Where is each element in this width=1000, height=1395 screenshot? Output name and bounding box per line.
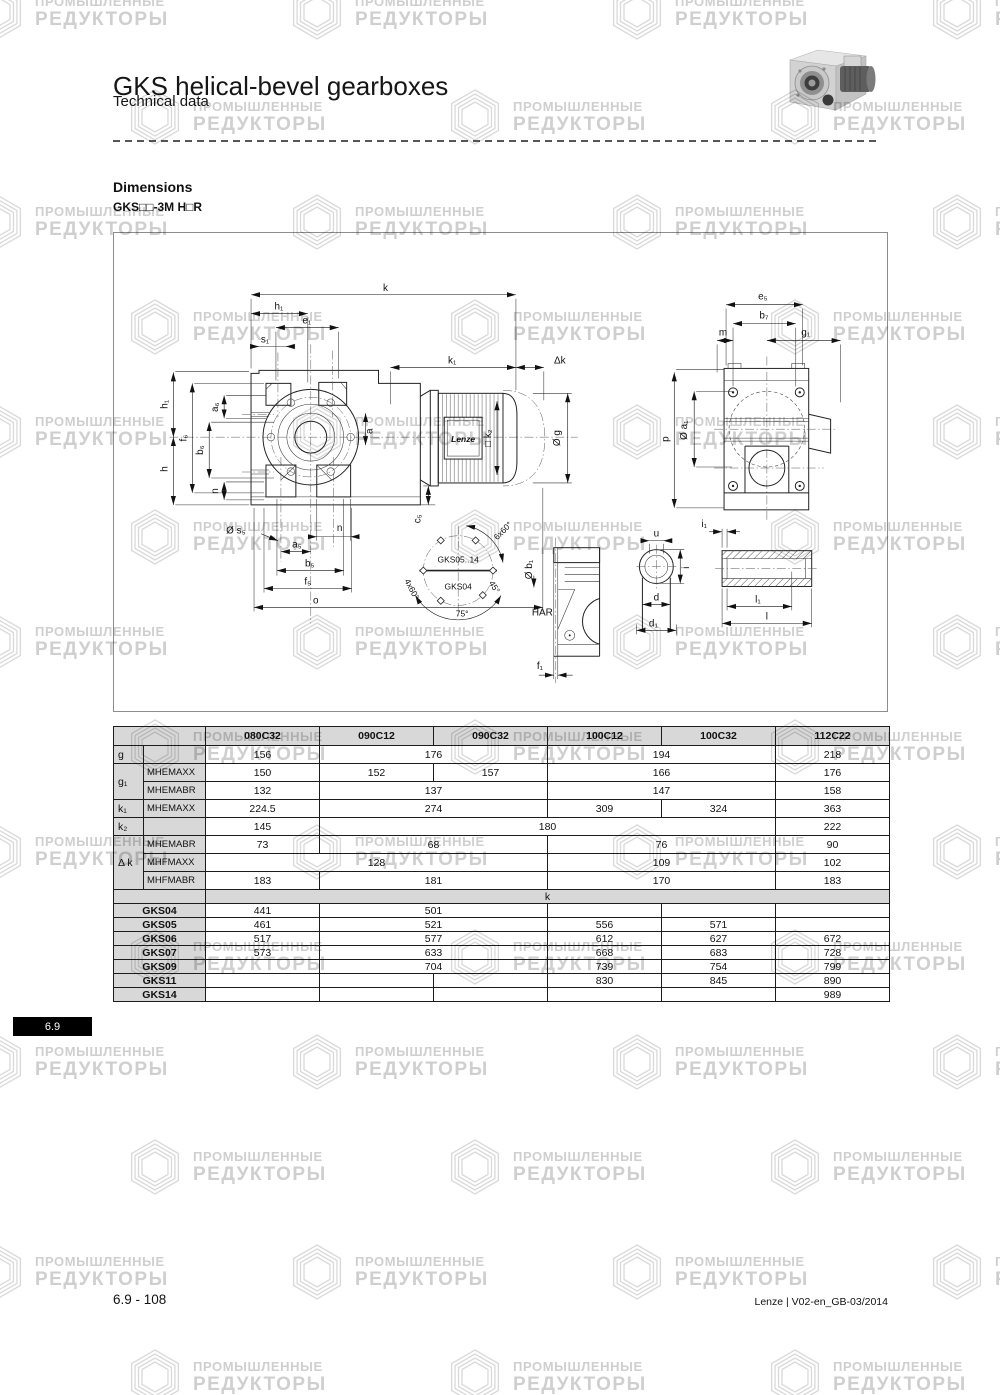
watermark-line2: РЕДУКТОРЫ — [995, 1270, 1000, 1290]
dim-label-e1: e₁ — [302, 316, 312, 327]
table-cell — [320, 974, 434, 988]
gks-row-label: GKS11 — [114, 974, 206, 988]
watermark-line1: ПРОМЫШЛЕННЫЕ — [675, 0, 809, 10]
dimension-table: 080C32090C12090C32100C12100C32112C22g156… — [113, 726, 890, 1002]
watermark-line2: РЕДУКТОРЫ — [355, 1060, 489, 1080]
variant-label: GKS□□-3M H□R — [113, 200, 202, 214]
watermark: ПРОМЫШЛЕННЫЕРЕДУКТОРЫ — [765, 1345, 967, 1395]
watermark: ПРОМЫШЛЕННЫЕРЕДУКТОРЫ — [0, 1030, 169, 1094]
watermark-line1: ПРОМЫШЛЕННЫЕ — [355, 0, 489, 10]
table-cell: 102 — [776, 854, 890, 872]
watermark: ПРОМЫШЛЕННЫЕРЕДУКТОРЫ — [765, 1135, 967, 1199]
label-45deg: 45° — [487, 579, 502, 595]
table-cell: 845 — [662, 974, 776, 988]
table-cell: 156 — [206, 746, 320, 764]
row-label: g — [114, 746, 144, 764]
watermark-line2: РЕДУКТОРЫ — [995, 430, 1000, 450]
watermark: ПРОМЫШЛЕННЫЕРЕДУКТОРЫ — [287, 1240, 489, 1304]
watermark-hexagon-logo — [927, 820, 987, 884]
label-gks04: GKS04 — [445, 582, 473, 592]
watermark-line1: ПРОМЫШЛЕННЫЕ — [995, 834, 1000, 850]
dimension-drawing-frame: k h₁ e₁ s₁ k₁ Δk — [113, 232, 888, 712]
watermark: ПРОМЫШЛЕННЫЕРЕДУКТОРЫ — [927, 1240, 1000, 1304]
section-label-cell — [114, 890, 206, 904]
watermark-line1: ПРОМЫШЛЕННЫЕ — [995, 204, 1000, 220]
col-header: 112C22 — [776, 727, 890, 746]
row-sublabel: MHEMABR — [144, 782, 206, 800]
dim-label-phi-a1: Ø a₁ — [679, 420, 690, 440]
watermark-hexagon-logo — [0, 610, 27, 674]
watermark-hexagon-logo — [927, 0, 987, 44]
watermark-line1: ПРОМЫШЛЕННЫЕ — [193, 1359, 327, 1375]
dim-label-a: a — [365, 428, 376, 434]
table-cell: 577 — [320, 932, 548, 946]
dimension-drawing: k h₁ e₁ s₁ k₁ Δk — [114, 233, 887, 711]
table-cell: 728 — [776, 946, 890, 960]
table-cell — [206, 988, 320, 1002]
dim-label-h1-left: h₁ — [159, 399, 170, 409]
watermark-line2: РЕДУКТОРЫ — [675, 1060, 809, 1080]
watermark-line2: РЕДУКТОРЫ — [513, 115, 647, 135]
watermark: ПРОМЫШЛЕННЫЕРЕДУКТОРЫ — [125, 1345, 327, 1395]
dim-label-o: o — [313, 595, 319, 606]
table-cell — [206, 974, 320, 988]
watermark-line1: ПРОМЫШЛЕННЫЕ — [355, 1044, 489, 1060]
table-cell: 152 — [320, 764, 434, 782]
watermark-hexagon-logo — [0, 0, 27, 44]
table-cell: 830 — [548, 974, 662, 988]
watermark-hexagon-logo — [927, 1030, 987, 1094]
gks-row-label: GKS14 — [114, 988, 206, 1002]
row-label: k₁ — [114, 800, 144, 818]
row-sublabel — [144, 746, 206, 764]
watermark-hexagon-logo — [607, 0, 667, 44]
row-sublabel: MHFMABR — [144, 872, 206, 890]
table-cell: 194 — [548, 746, 776, 764]
watermark-line1: ПРОМЫШЛЕННЫЕ — [675, 204, 809, 220]
dim-label-e5: e₅ — [758, 292, 768, 303]
table-corner-cell — [114, 727, 206, 746]
gks-row-label: GKS04 — [114, 904, 206, 918]
watermark-line2: РЕДУКТОРЫ — [193, 1165, 327, 1185]
watermark-line1: ПРОМЫШЛЕННЫЕ — [675, 1044, 809, 1060]
watermark-line1: ПРОМЫШЛЕННЫЕ — [995, 0, 1000, 10]
watermark-line2: РЕДУКТОРЫ — [833, 1375, 967, 1395]
col-header: 100C32 — [662, 727, 776, 746]
watermark-line2: РЕДУКТОРЫ — [193, 115, 327, 135]
watermark-line2: РЕДУКТОРЫ — [833, 1165, 967, 1185]
dim-label-a6: a₆ — [210, 402, 221, 412]
table-cell: 158 — [776, 782, 890, 800]
dim-label-s1: s₁ — [261, 335, 270, 346]
col-header: 090C32 — [434, 727, 548, 746]
label-har: HAR — [532, 607, 553, 618]
table-cell — [662, 988, 776, 1002]
dim-label-u: u — [654, 529, 660, 540]
label-75deg: 75° — [456, 608, 469, 618]
shaft-section-view: u i d d₁ — [636, 529, 692, 635]
row-sublabel: MHEMAXX — [144, 800, 206, 818]
watermark-line1: ПРОМЫШЛЕННЫЕ — [35, 1044, 169, 1060]
table-cell: 68 — [320, 836, 548, 854]
dim-label-k2: □ k₂ — [483, 429, 494, 447]
table-cell: 180 — [320, 818, 776, 836]
har-section-view: Ø b₁ HAR f₁ — [524, 538, 600, 683]
table-cell: 704 — [320, 960, 548, 974]
watermark-hexagon-logo — [287, 1030, 347, 1094]
dim-label-d: d — [654, 592, 660, 603]
hollow-shaft-view: i₁ l₁ l — [701, 519, 818, 628]
watermark-line1: ПРОМЫШЛЕННЫЕ — [513, 99, 647, 115]
watermark-line2: РЕДУКТОРЫ — [995, 850, 1000, 870]
dim-label-d1: d₁ — [649, 618, 659, 629]
watermark: ПРОМЫШЛЕННЫЕРЕДУКТОРЫ — [927, 820, 1000, 884]
watermark-line2: РЕДУКТОРЫ — [513, 1375, 647, 1395]
watermark: ПРОМЫШЛЕННЫЕРЕДУКТОРЫ — [927, 190, 1000, 254]
table-cell — [662, 904, 776, 918]
table-cell: 147 — [548, 782, 776, 800]
watermark: ПРОМЫШЛЕННЫЕРЕДУКТОРЫ — [125, 1135, 327, 1199]
watermark-hexagon-logo — [0, 400, 27, 464]
dim-label-p: p — [660, 436, 671, 442]
watermark: ПРОМЫШЛЕННЫЕРЕДУКТОРЫ — [927, 610, 1000, 674]
watermark-line1: ПРОМЫШЛЕННЫЕ — [513, 1149, 647, 1165]
row-sublabel — [144, 818, 206, 836]
dim-label-l: l — [766, 611, 768, 622]
dim-label-m: m — [719, 328, 727, 339]
dim-label-c5: c₅ — [412, 514, 423, 523]
row-sublabel: MHEMAXX — [144, 764, 206, 782]
dim-label-phi-s5: Ø s₅ — [226, 526, 245, 537]
watermark: ПРОМЫШЛЕННЫЕРЕДУКТОРЫ — [927, 1030, 1000, 1094]
gks-row-label: GKS06 — [114, 932, 206, 946]
watermark-hexagon-logo — [0, 820, 27, 884]
dim-label-l1: l₁ — [755, 594, 761, 605]
watermark-hexagon-logo — [287, 1240, 347, 1304]
table-cell: 90 — [776, 836, 890, 854]
table-cell: 145 — [206, 818, 320, 836]
label-gks05-14: GKS05..14 — [437, 555, 479, 565]
watermark: ПРОМЫШЛЕННЫЕРЕДУКТОРЫ — [927, 400, 1000, 464]
gks-row-label: GKS07 — [114, 946, 206, 960]
section-heading: Dimensions — [113, 179, 192, 195]
table-cell: 183 — [206, 872, 320, 890]
row-sublabel: MHFMAXX — [144, 854, 206, 872]
table-cell: 556 — [548, 918, 662, 932]
table-cell: 76 — [548, 836, 776, 854]
watermark: ПРОМЫШЛЕННЫЕРЕДУКТОРЫ — [287, 0, 489, 44]
dim-label-a5: a₅ — [292, 540, 302, 551]
table-cell: 128 — [206, 854, 548, 872]
table-cell: 363 — [776, 800, 890, 818]
table-cell: 176 — [320, 746, 548, 764]
table-cell: 224.5 — [206, 800, 320, 818]
table-cell: 521 — [320, 918, 548, 932]
table-cell — [434, 974, 548, 988]
watermark-line1: ПРОМЫШЛЕННЫЕ — [995, 1044, 1000, 1060]
table-cell: 633 — [320, 946, 548, 960]
watermark-hexagon-logo — [125, 1135, 185, 1199]
table-cell: 157 — [434, 764, 548, 782]
table-cell: 517 — [206, 932, 320, 946]
row-sublabel: MHEMABR — [144, 836, 206, 854]
dim-label-f6: f₆ — [178, 435, 189, 442]
table-cell: 501 — [320, 904, 548, 918]
dim-label-dk: Δk — [554, 355, 566, 366]
table-cell: 668 — [548, 946, 662, 960]
watermark: ПРОМЫШЛЕННЫЕРЕДУКТОРЫ — [287, 1030, 489, 1094]
watermark-line1: ПРОМЫШЛЕННЫЕ — [833, 1359, 967, 1375]
gks-row-label: GKS05 — [114, 918, 206, 932]
watermark-line2: РЕДУКТОРЫ — [35, 1270, 169, 1290]
page-number: 6.9 - 108 — [113, 1292, 166, 1307]
table-cell — [776, 904, 890, 918]
table-cell: 441 — [206, 904, 320, 918]
dim-label-k: k — [383, 283, 388, 294]
table-cell: 890 — [776, 974, 890, 988]
watermark-line1: ПРОМЫШЛЕННЫЕ — [193, 1149, 327, 1165]
dim-label-g1: g₁ — [801, 328, 811, 339]
dim-label-k1: k₁ — [448, 355, 457, 366]
watermark-hexagon-logo — [125, 1345, 185, 1395]
watermark-hexagon-logo — [927, 400, 987, 464]
table-cell: 754 — [662, 960, 776, 974]
table-cell: 137 — [320, 782, 548, 800]
label-6x60: 6x60° — [492, 519, 514, 541]
table-cell — [548, 988, 662, 1002]
watermark-line1: ПРОМЫШЛЕННЫЕ — [35, 1254, 169, 1270]
watermark-line2: РЕДУКТОРЫ — [35, 1060, 169, 1080]
dim-label-b5: b₅ — [305, 559, 315, 570]
table-cell: 324 — [662, 800, 776, 818]
row-label: g₁ — [114, 764, 144, 800]
row-label: Δ k — [114, 836, 144, 890]
dim-label-i1: i₁ — [701, 519, 707, 530]
watermark-hexagon-logo — [927, 610, 987, 674]
watermark-hexagon-logo — [765, 1345, 825, 1395]
table-cell: 132 — [206, 782, 320, 800]
product-photo — [778, 38, 893, 118]
watermark-hexagon-logo — [445, 1135, 505, 1199]
watermark-line2: РЕДУКТОРЫ — [995, 220, 1000, 240]
brand-nameplate: Lenze — [451, 434, 475, 444]
chapter-tab: 6.9 — [13, 1017, 92, 1036]
watermark-line2: РЕДУКТОРЫ — [193, 1375, 327, 1395]
table-cell: 109 — [548, 854, 776, 872]
watermark-line1: ПРОМЫШЛЕННЫЕ — [355, 1254, 489, 1270]
document-reference: Lenze | V02-en_GB-03/2014 — [755, 1296, 889, 1308]
table-cell: 166 — [548, 764, 776, 782]
watermark: ПРОМЫШЛЕННЫЕРЕДУКТОРЫ — [927, 0, 1000, 44]
watermark-line1: ПРОМЫШЛЕННЫЕ — [995, 624, 1000, 640]
table-cell: 627 — [662, 932, 776, 946]
watermark-line2: РЕДУКТОРЫ — [995, 10, 1000, 30]
watermark: ПРОМЫШЛЕННЫЕРЕДУКТОРЫ — [445, 1135, 647, 1199]
table-cell: 683 — [662, 946, 776, 960]
watermark-line1: ПРОМЫШЛЕННЫЕ — [995, 1254, 1000, 1270]
col-header: 100C12 — [548, 727, 662, 746]
table-cell — [776, 918, 890, 932]
col-header: 090C12 — [320, 727, 434, 746]
dashed-divider — [113, 140, 881, 142]
dimension-table-mount: 080C32090C12090C32100C12100C32112C22g156… — [113, 726, 890, 1002]
col-header: 080C32 — [206, 727, 320, 746]
front-view: k h₁ e₁ s₁ k₁ Δk — [159, 283, 577, 624]
watermark-line2: РЕДУКТОРЫ — [675, 1270, 809, 1290]
table-cell: 218 — [776, 746, 890, 764]
bolt-circle-detail: GKS05..14 GKS04 6x60° 4x60° 45° 75° — [403, 519, 515, 619]
watermark-hexagon-logo — [765, 1135, 825, 1199]
table-cell: 176 — [776, 764, 890, 782]
catalog-page: ПРОМЫШЛЕННЫЕРЕДУКТОРЫПРОМЫШЛЕННЫЕРЕДУКТО… — [0, 0, 1000, 1395]
dim-label-phi-g: Ø g — [552, 430, 563, 446]
dim-label-f5: f₅ — [304, 577, 311, 588]
watermark-hexagon-logo — [0, 1240, 27, 1304]
label-4x60: 4x60° — [403, 577, 422, 601]
watermark-line2: РЕДУКТОРЫ — [513, 1165, 647, 1185]
watermark-hexagon-logo — [927, 190, 987, 254]
watermark-line1: ПРОМЫШЛЕННЫЕ — [833, 1149, 967, 1165]
table-cell: 181 — [320, 872, 548, 890]
watermark-hexagon-logo — [607, 1030, 667, 1094]
table-cell: 461 — [206, 918, 320, 932]
watermark-line1: ПРОМЫШЛЕННЫЕ — [355, 204, 489, 220]
page-subtitle: Technical data — [113, 93, 209, 110]
watermark-line2: РЕДУКТОРЫ — [995, 640, 1000, 660]
table-cell: 73 — [206, 836, 320, 854]
watermark-line1: ПРОМЫШЛЕННЫЕ — [675, 1254, 809, 1270]
watermark-hexagon-logo — [0, 190, 27, 254]
dim-label-phi-b1: Ø b₁ — [524, 559, 535, 579]
watermark-line2: РЕДУКТОРЫ — [35, 10, 169, 30]
table-cell — [320, 988, 434, 1002]
table-cell: 150 — [206, 764, 320, 782]
dim-label-h: h — [159, 466, 170, 472]
side-view: e₅ b₇ m g₁ p Ø a₁ — [660, 292, 840, 520]
row-label: k₂ — [114, 818, 144, 836]
watermark: ПРОМЫШЛЕННЫЕРЕДУКТОРЫ — [445, 1345, 647, 1395]
table-cell: 799 — [776, 960, 890, 974]
watermark: ПРОМЫШЛЕННЫЕРЕДУКТОРЫ — [607, 1030, 809, 1094]
watermark-line2: РЕДУКТОРЫ — [355, 10, 489, 30]
watermark-line2: РЕДУКТОРЫ — [355, 1270, 489, 1290]
watermark-hexagon-logo — [287, 0, 347, 44]
table-cell: 989 — [776, 988, 890, 1002]
watermark-line2: РЕДУКТОРЫ — [995, 1060, 1000, 1080]
watermark-line1: ПРОМЫШЛЕННЫЕ — [513, 1359, 647, 1375]
dim-label-f1: f₁ — [537, 661, 544, 672]
watermark-hexagon-logo — [607, 1240, 667, 1304]
dim-label-n-bottom: n — [337, 523, 343, 534]
dim-label-b7: b₇ — [759, 311, 769, 322]
table-cell: 672 — [776, 932, 890, 946]
dim-label-i: i — [681, 566, 692, 568]
dim-label-h1-top: h₁ — [274, 302, 284, 313]
watermark-line2: РЕДУКТОРЫ — [675, 10, 809, 30]
table-cell: 170 — [548, 872, 776, 890]
gks-row-label: GKS09 — [114, 960, 206, 974]
table-cell: 571 — [662, 918, 776, 932]
watermark-hexagon-logo — [445, 1345, 505, 1395]
table-cell — [434, 988, 548, 1002]
table-cell: 183 — [776, 872, 890, 890]
watermark-line1: ПРОМЫШЛЕННЫЕ — [995, 414, 1000, 430]
watermark-line1: ПРОМЫШЛЕННЫЕ — [35, 0, 169, 10]
table-cell — [548, 904, 662, 918]
dim-label-b6: b₆ — [195, 445, 206, 455]
watermark-hexagon-logo — [927, 1240, 987, 1304]
table-cell — [206, 960, 320, 974]
dim-label-n-left: n — [210, 488, 221, 494]
table-cell: 309 — [548, 800, 662, 818]
table-cell: 739 — [548, 960, 662, 974]
table-cell: 274 — [320, 800, 548, 818]
watermark-hexagon-logo — [0, 1030, 27, 1094]
watermark: ПРОМЫШЛЕННЫЕРЕДУКТОРЫ — [607, 1240, 809, 1304]
table-cell: 222 — [776, 818, 890, 836]
table-cell: 573 — [206, 946, 320, 960]
watermark: ПРОМЫШЛЕННЫЕРЕДУКТОРЫ — [0, 0, 169, 44]
table-cell: 612 — [548, 932, 662, 946]
section-header: k — [206, 890, 890, 904]
